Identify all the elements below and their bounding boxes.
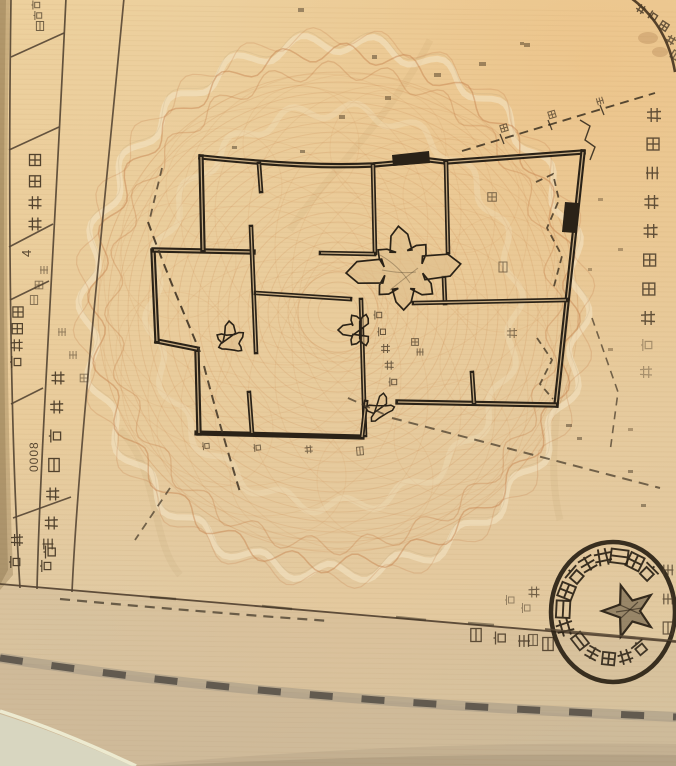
svg-text:4: 4 bbox=[19, 250, 34, 257]
svg-text:0008: 0008 bbox=[27, 441, 41, 472]
